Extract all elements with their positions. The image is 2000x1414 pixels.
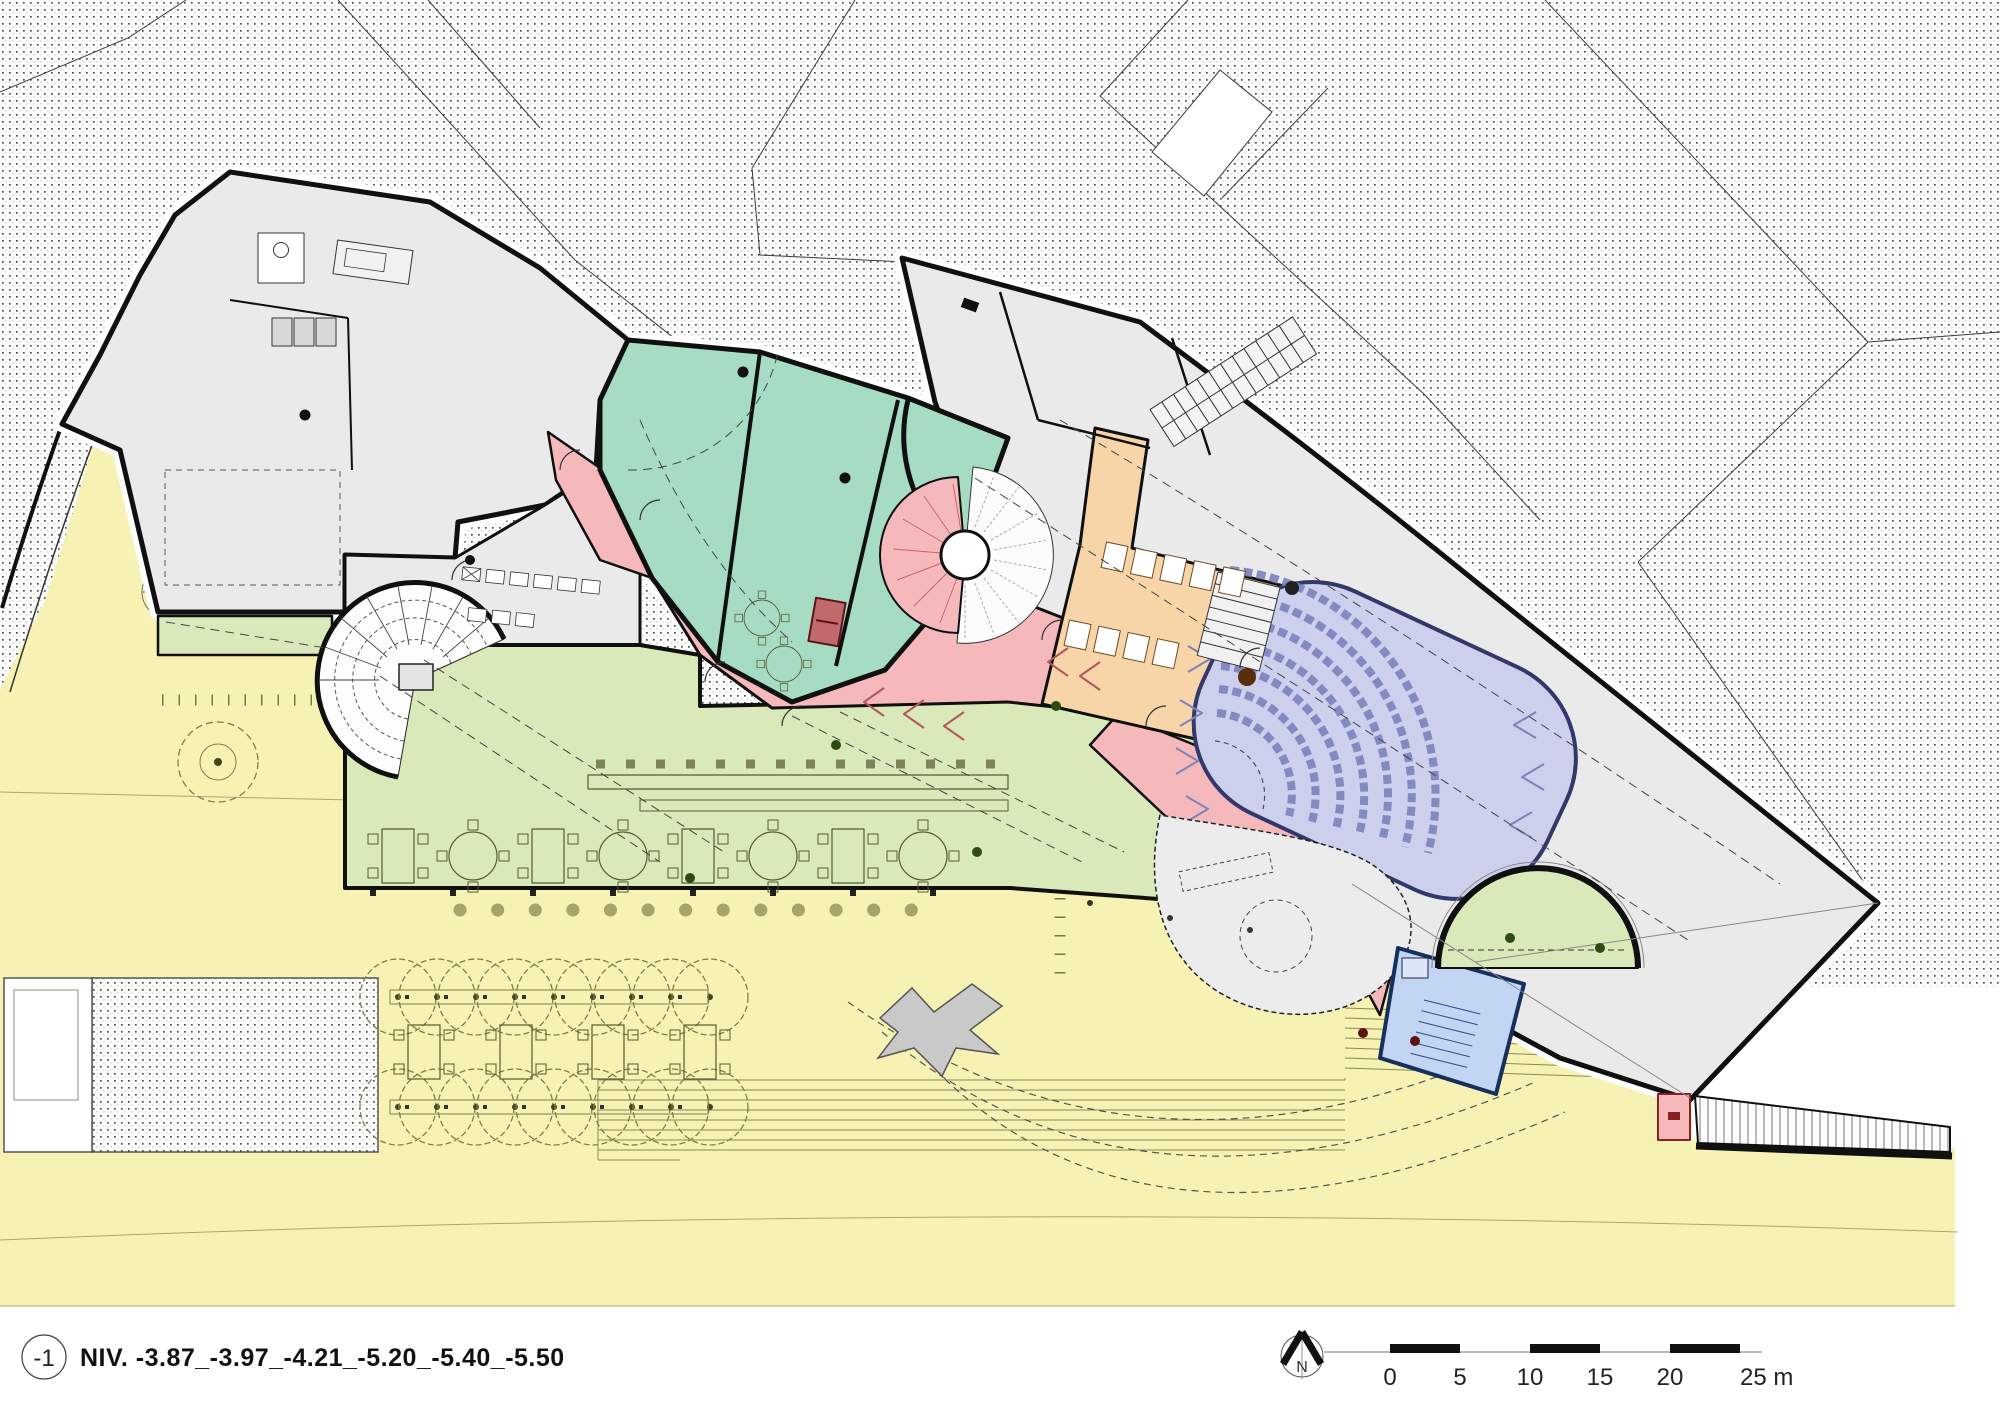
drawing-title: NIV. -3.87_-3.97_-4.21_-5.20_-5.40_-5.50 — [80, 1344, 565, 1372]
se-walkway — [1658, 1094, 1952, 1156]
scale-tick-10: 10 — [1517, 1364, 1544, 1391]
floor-plan-svg: -1 NIV. -3.87_-3.97_-4.21_-5.20_-5.40_-5… — [0, 0, 2000, 1414]
legend-bar: -1 NIV. -3.87_-3.97_-4.21_-5.20_-5.40_-5… — [22, 1330, 1793, 1391]
scale-tick-5: 5 — [1453, 1364, 1466, 1391]
level-badge-label: -1 — [33, 1345, 54, 1372]
floor-plan-page: -1 NIV. -3.87_-3.97_-4.21_-5.20_-5.40_-5… — [0, 0, 2000, 1414]
elevator-center — [808, 598, 845, 647]
scale-tick-20: 20 — [1657, 1364, 1684, 1391]
zone-green-strip — [158, 616, 332, 655]
level-badge: -1 — [22, 1335, 66, 1379]
north-arrow: N — [1280, 1330, 1324, 1379]
north-label: N — [1296, 1359, 1308, 1376]
scale-tick-15: 15 — [1587, 1364, 1614, 1391]
neighbor-parcel-block — [4, 978, 378, 1152]
scale-bar: 0 5 10 15 20 25 m — [1324, 1344, 1793, 1391]
scale-tick-25: 25 m — [1740, 1364, 1793, 1391]
scale-tick-0: 0 — [1383, 1364, 1396, 1391]
